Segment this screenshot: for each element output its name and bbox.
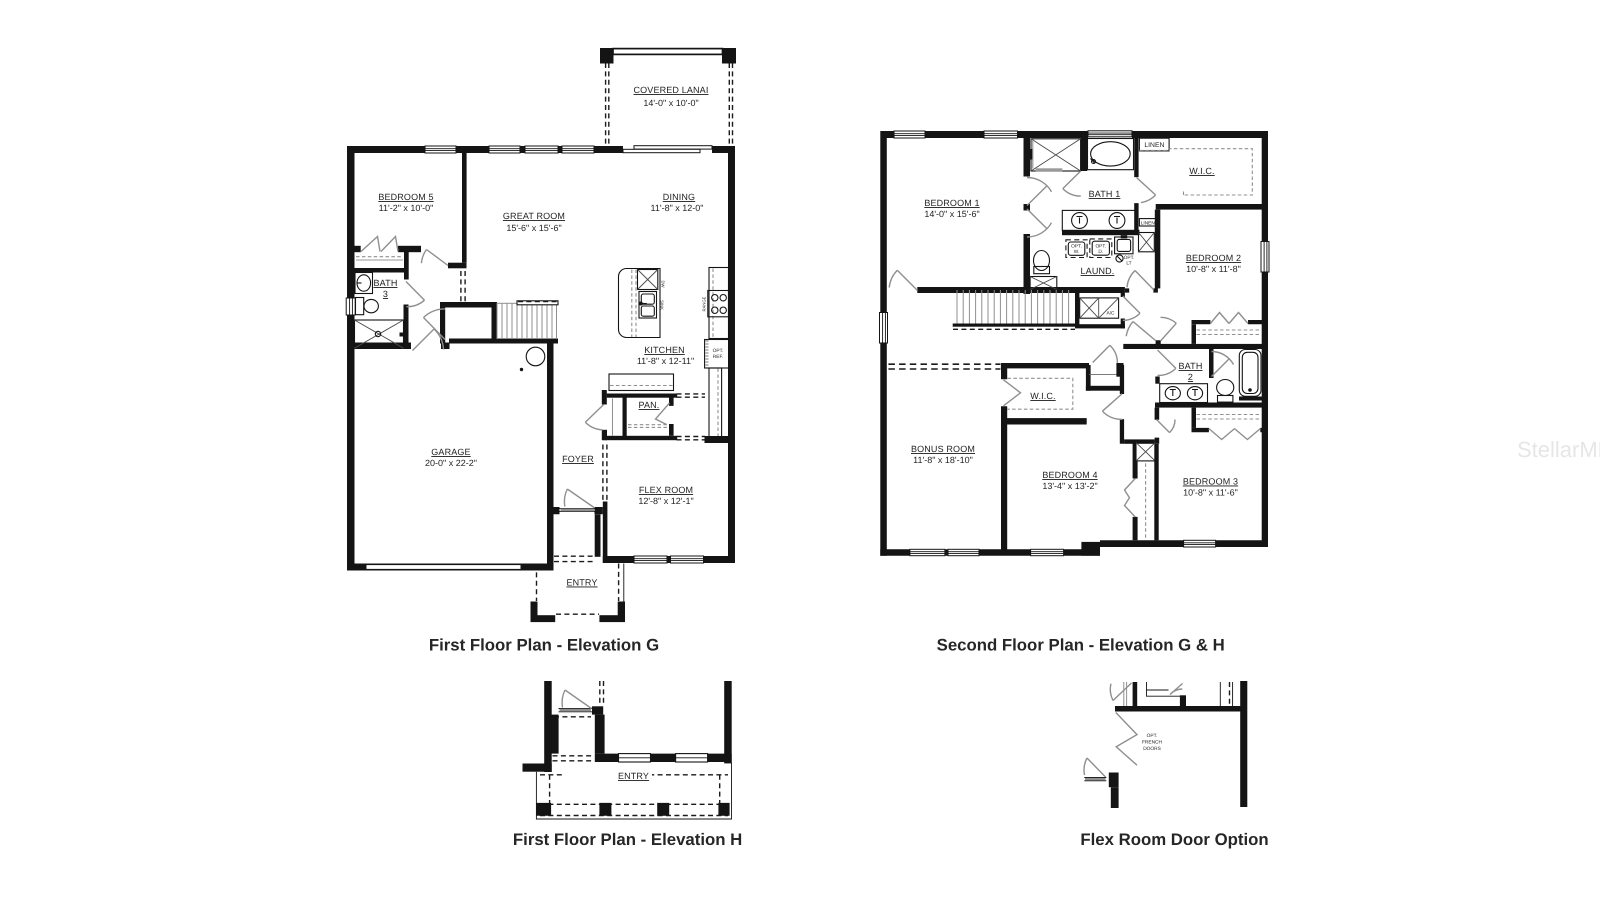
svg-text:StellarMLS: StellarMLS bbox=[1517, 437, 1600, 462]
svg-text:15'-6" x 15'-6": 15'-6" x 15'-6" bbox=[506, 223, 561, 233]
svg-text:GREAT ROOM: GREAT ROOM bbox=[503, 211, 565, 221]
svg-text:ENTRY: ENTRY bbox=[566, 578, 597, 588]
svg-text:BATH: BATH bbox=[1179, 361, 1203, 371]
svg-text:BEDROOM 5: BEDROOM 5 bbox=[378, 192, 433, 202]
svg-text:Flex Room Door Option: Flex Room Door Option bbox=[1080, 830, 1268, 849]
svg-text:REF.: REF. bbox=[713, 354, 723, 360]
svg-text:LAUND.: LAUND. bbox=[1081, 266, 1115, 276]
svg-text:First Floor Plan - Elevation H: First Floor Plan - Elevation H bbox=[513, 830, 742, 849]
svg-text:11'-2" x 10'-0": 11'-2" x 10'-0" bbox=[379, 203, 434, 213]
svg-text:First Floor Plan - Elevation G: First Floor Plan - Elevation G bbox=[429, 636, 659, 655]
svg-text:COVERED LANAI: COVERED LANAI bbox=[634, 85, 709, 95]
svg-text:OPT.: OPT. bbox=[1147, 733, 1158, 739]
svg-text:BEDROOM 4: BEDROOM 4 bbox=[1042, 470, 1097, 480]
svg-text:SINK: SINK bbox=[660, 300, 665, 310]
svg-text:DW: DW bbox=[661, 281, 666, 288]
svg-text:A/C: A/C bbox=[1107, 311, 1116, 317]
svg-text:LINEN: LINEN bbox=[1144, 142, 1164, 149]
svg-text:10'-8" x 11'-6": 10'-8" x 11'-6" bbox=[1183, 488, 1238, 498]
svg-text:BATH 1: BATH 1 bbox=[1089, 189, 1121, 199]
svg-text:12'-8" x 12'-1": 12'-8" x 12'-1" bbox=[638, 496, 693, 506]
svg-text:OPT.: OPT. bbox=[1095, 244, 1106, 250]
svg-text:OPT.: OPT. bbox=[713, 348, 724, 354]
svg-text:OPT.: OPT. bbox=[1071, 244, 1082, 250]
svg-text:11'-8" x 18'-10": 11'-8" x 18'-10" bbox=[913, 455, 973, 465]
svg-text:ENTRY: ENTRY bbox=[618, 771, 649, 781]
svg-text:10'-8" x 11'-8": 10'-8" x 11'-8" bbox=[1186, 264, 1241, 274]
svg-text:11'-8" x 12-11": 11'-8" x 12-11" bbox=[637, 356, 694, 366]
svg-text:11'-8" x 12-0": 11'-8" x 12-0" bbox=[651, 203, 704, 213]
svg-text:14'-0" x 15'-6": 14'-0" x 15'-6" bbox=[924, 209, 979, 219]
svg-text:FRENCH: FRENCH bbox=[1142, 740, 1163, 746]
svg-text:BATH: BATH bbox=[374, 278, 398, 288]
svg-text:BEDROOM 1: BEDROOM 1 bbox=[924, 198, 979, 208]
svg-text:W.: W. bbox=[1074, 249, 1080, 255]
svg-text:LINEN: LINEN bbox=[1141, 221, 1156, 227]
svg-text:W.I.C.: W.I.C. bbox=[1189, 166, 1214, 176]
svg-text:BEDROOM 2: BEDROOM 2 bbox=[1186, 253, 1241, 263]
svg-text:GARAGE: GARAGE bbox=[431, 447, 470, 457]
svg-text:KITCHEN: KITCHEN bbox=[644, 345, 685, 355]
svg-text:13'-4" x 13'-2": 13'-4" x 13'-2" bbox=[1042, 481, 1097, 491]
svg-text:W.I.C.: W.I.C. bbox=[1030, 391, 1055, 401]
svg-text:OPT.: OPT. bbox=[1124, 255, 1135, 261]
svg-text:14'-0" x 10'-0": 14'-0" x 10'-0" bbox=[643, 98, 698, 108]
svg-text:DINING: DINING bbox=[663, 192, 695, 202]
svg-text:LT: LT bbox=[1126, 261, 1131, 267]
svg-text:3: 3 bbox=[383, 289, 388, 299]
svg-text:20-0" x 22-2": 20-0" x 22-2" bbox=[425, 458, 477, 468]
svg-text:FLEX ROOM: FLEX ROOM bbox=[639, 485, 693, 495]
svg-text:2: 2 bbox=[1188, 372, 1193, 382]
svg-text:PAN.: PAN. bbox=[639, 400, 660, 410]
svg-text:RANGE: RANGE bbox=[702, 296, 707, 311]
svg-text:BONUS ROOM: BONUS ROOM bbox=[911, 444, 975, 454]
svg-text:DOORS: DOORS bbox=[1143, 746, 1161, 752]
svg-text:BEDROOM 3: BEDROOM 3 bbox=[1183, 477, 1238, 487]
svg-text:Second Floor Plan - Elevation: Second Floor Plan - Elevation G & H bbox=[937, 636, 1225, 655]
svg-text:FOYER: FOYER bbox=[562, 454, 594, 464]
svg-text:D.: D. bbox=[1098, 249, 1103, 255]
